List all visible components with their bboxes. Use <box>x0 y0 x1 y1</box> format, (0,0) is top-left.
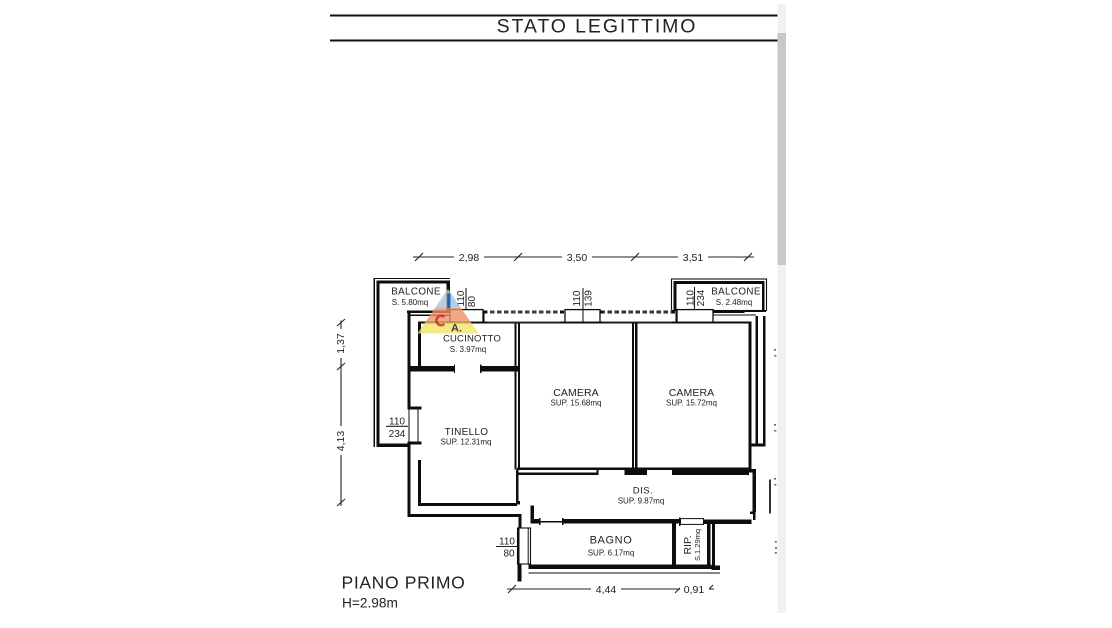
svg-text:CUCINOTTO: CUCINOTTO <box>443 333 501 344</box>
svg-text:STATO LEGITTIMO: STATO LEGITTIMO <box>497 16 698 38</box>
svg-text:139: 139 <box>584 290 595 307</box>
svg-text:BALCONE: BALCONE <box>711 287 761 298</box>
svg-text:S. 5.80mq: S. 5.80mq <box>392 298 428 307</box>
svg-text:0,91: 0,91 <box>684 584 705 596</box>
svg-text:SUP. 9.87mq: SUP. 9.87mq <box>618 497 665 506</box>
svg-text:BAGNO: BAGNO <box>590 535 633 547</box>
svg-text:A.: A. <box>451 323 462 335</box>
svg-text:S. 2.48mq: S. 2.48mq <box>716 298 752 307</box>
svg-text:TINELLO: TINELLO <box>445 427 489 438</box>
svg-text:S.1.29mq: S.1.29mq <box>693 529 702 561</box>
svg-text:3,51: 3,51 <box>683 252 704 264</box>
svg-text:SUP. 15.72mq: SUP. 15.72mq <box>666 399 717 408</box>
svg-text:SUP. 6.17mq: SUP. 6.17mq <box>588 549 635 558</box>
svg-text:H=2.98m: H=2.98m <box>342 596 398 611</box>
svg-text:80: 80 <box>467 296 478 308</box>
svg-text:110: 110 <box>499 537 515 548</box>
svg-text:S. 3.97mq: S. 3.97mq <box>450 345 486 354</box>
svg-text:110: 110 <box>572 290 583 306</box>
svg-text:110: 110 <box>686 290 697 306</box>
svg-text:2,98: 2,98 <box>459 252 480 264</box>
svg-text:3,50: 3,50 <box>567 252 588 264</box>
svg-text:PIANO PRIMO: PIANO PRIMO <box>342 573 466 593</box>
svg-text:CAMERA: CAMERA <box>669 387 715 399</box>
svg-text:4,44: 4,44 <box>596 584 617 596</box>
svg-text:80: 80 <box>503 549 515 560</box>
svg-text:1,37: 1,37 <box>335 333 347 354</box>
svg-text:SUP. 15.68mq: SUP. 15.68mq <box>551 399 602 408</box>
svg-text:234: 234 <box>389 429 406 440</box>
svg-text:4,13: 4,13 <box>335 431 347 452</box>
svg-text:BALCONE: BALCONE <box>391 287 441 298</box>
svg-text:DIS.: DIS. <box>633 486 653 497</box>
svg-text:234: 234 <box>696 289 707 306</box>
svg-text:CAMERA: CAMERA <box>553 387 599 399</box>
svg-text:SUP. 12.31mq: SUP. 12.31mq <box>441 438 492 447</box>
